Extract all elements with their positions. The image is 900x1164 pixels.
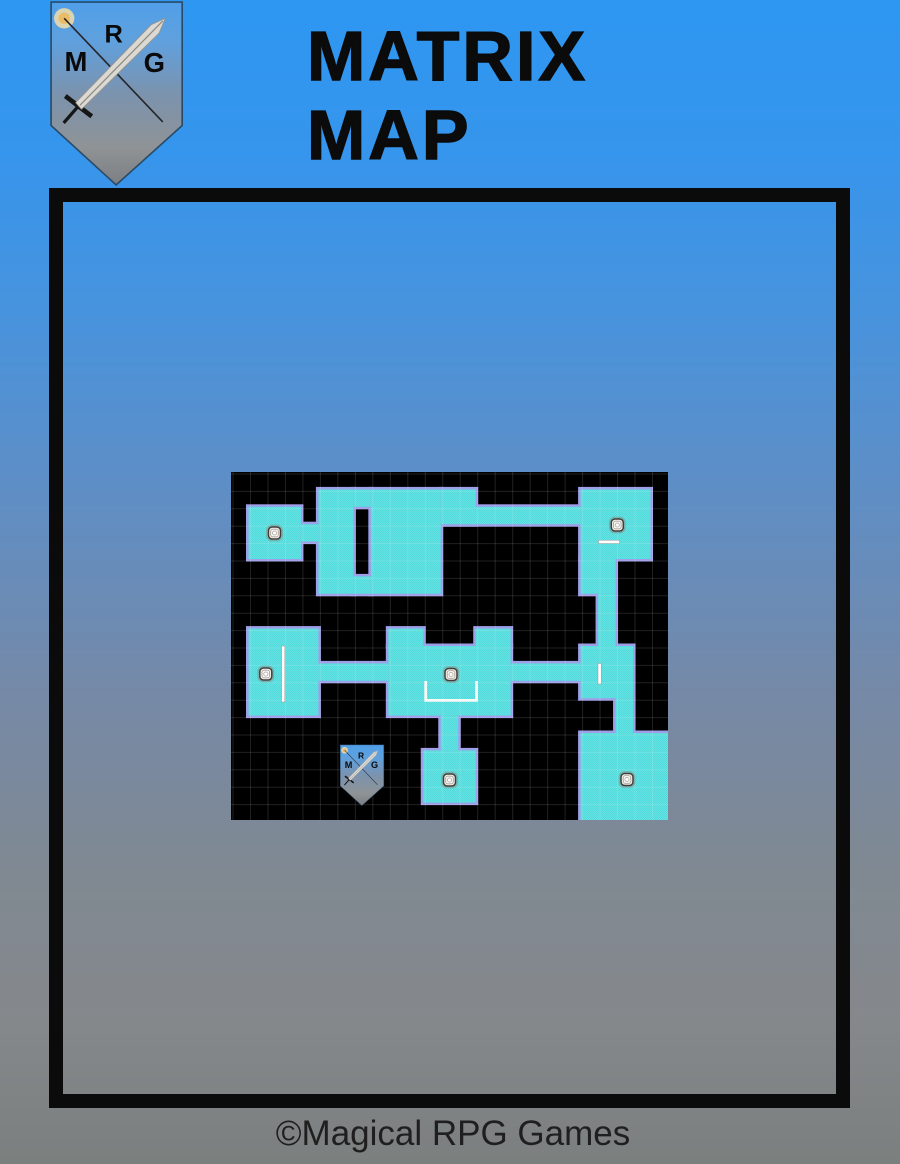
svg-text:G: G (371, 760, 378, 770)
svg-text:G: G (143, 47, 164, 78)
svg-text:R: R (104, 20, 122, 48)
svg-text:M: M (64, 46, 87, 77)
svg-text:M: M (345, 760, 353, 770)
svg-text:R: R (358, 750, 364, 760)
